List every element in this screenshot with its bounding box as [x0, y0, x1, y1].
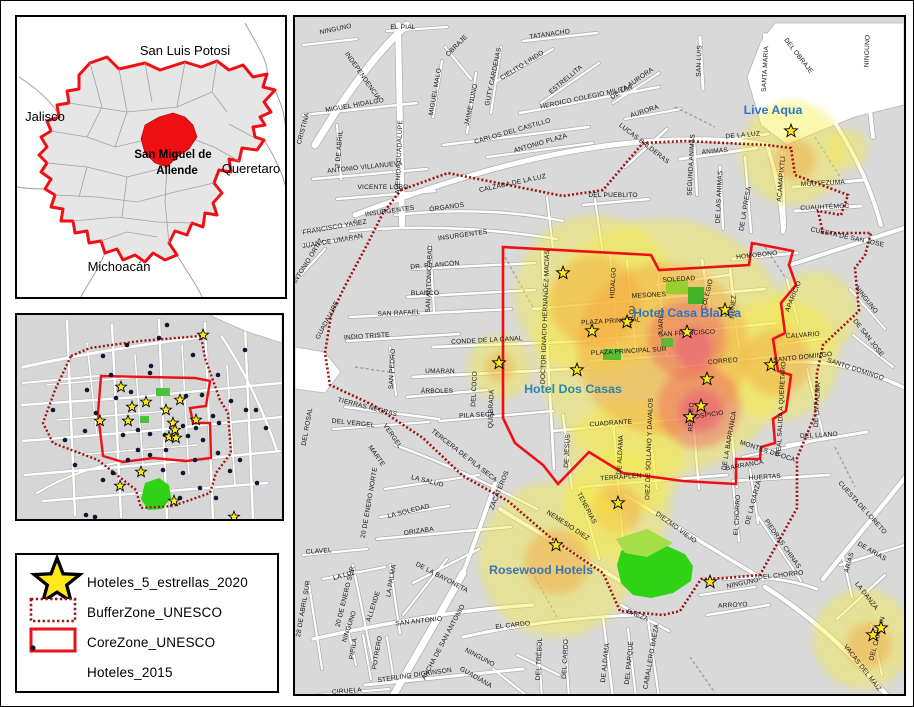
hotel-name-label: Hotel Dos Casas	[524, 382, 622, 396]
hotel-2015-dot	[211, 414, 216, 419]
hotel-2015-dot	[228, 469, 233, 474]
hotel-2015-dot	[121, 433, 126, 438]
street-label: BLANCO	[411, 290, 439, 297]
legend-label: CoreZone_UNESCO	[87, 635, 215, 650]
hotel-2015-dot	[193, 458, 198, 463]
hotel-2015-dot	[201, 438, 206, 443]
hotel-2015-dot	[125, 343, 130, 348]
park-area	[156, 388, 170, 396]
hotel-2015-dot	[101, 478, 106, 483]
hotel-2015-dot	[148, 453, 153, 458]
park-area	[140, 416, 149, 423]
hotel-2015-dot	[148, 371, 153, 376]
hotel-2015-dot	[217, 421, 222, 426]
street-label: QUEBRADA	[487, 389, 495, 428]
street-label: EL PIAL	[390, 24, 415, 31]
region-label: Michoacán	[88, 259, 151, 274]
hotel-2015-dot	[200, 393, 205, 398]
hotel-2015-dot	[94, 411, 99, 416]
hotel-2015-dot	[84, 513, 89, 518]
hotel-2015-dot	[165, 323, 170, 328]
hotel-2015-dot	[238, 458, 243, 463]
street-label: DEL PUEBLITO	[588, 192, 637, 199]
hotel-2015-dot	[198, 486, 203, 491]
hotel-2015-dot	[255, 481, 260, 486]
hotel-2015-dot	[254, 408, 259, 413]
heat-density-blob	[828, 129, 868, 169]
street-label: ÁRBOLES	[421, 386, 454, 395]
hotel-2015-dot	[181, 424, 186, 429]
legend-label: Hoteles_2015	[87, 665, 173, 680]
legend-item-hotels-2020: Hoteles_5_estrellas_2020	[27, 567, 277, 597]
inset-city-map	[15, 313, 284, 521]
hotel-2015-dot	[214, 496, 219, 501]
hotel-2015-dot	[73, 463, 78, 468]
hotel-2015-dot	[136, 428, 141, 433]
main-map: NINGUNOEL PIALOBRAJETATANACHOGUTY CARDEN…	[293, 15, 906, 696]
region-label: San Luis Potosi	[140, 43, 230, 58]
hotel-2015-dot	[148, 432, 153, 437]
region-label: Queretaro	[222, 161, 281, 176]
hotel-2015-dot	[191, 353, 196, 358]
hotel-2015-dot	[229, 399, 234, 404]
hotel-2015-dot	[243, 348, 248, 353]
dot-icon	[27, 642, 87, 702]
region-label: Jalisco	[25, 109, 65, 124]
hotel-2015-dot	[136, 448, 141, 453]
hotel-2015-dot	[114, 396, 119, 401]
main-map-svg: NINGUNOEL PIALOBRAJETATANACHOGUTY CARDEN…	[295, 17, 904, 694]
hotel-2015-dot	[149, 364, 154, 369]
legend-label: Hoteles_5_estrellas_2020	[87, 575, 248, 590]
street-label: UMARAN	[425, 368, 455, 375]
hotel-2015-dot	[184, 394, 189, 399]
hotel-2015-dot	[264, 426, 269, 431]
legend-item-hotels-2015: Hoteles_2015	[27, 657, 277, 687]
hotel-2015-dot	[181, 471, 186, 476]
sma-label-line2: Allende	[156, 165, 198, 177]
hotel-2015-dot	[216, 451, 221, 456]
inset-region-map: San Luis PotosiJaliscoQueretaroMichoacán…	[15, 15, 287, 299]
legend-label: BufferZone_UNESCO	[87, 605, 222, 620]
figure-frame: San Luis PotosiJaliscoQueretaroMichoacán…	[0, 0, 914, 707]
city-overview-svg	[17, 315, 282, 519]
legend: Hoteles_5_estrellas_2020 BufferZone_UNES…	[15, 553, 279, 693]
hotel-2015-dot	[85, 388, 90, 393]
street-label: NINGUNO	[863, 35, 871, 68]
legend-item-bufferzone: BufferZone_UNESCO	[27, 597, 277, 627]
hotel-2015-dot	[63, 438, 68, 443]
region-map-svg: San Luis PotosiJaliscoQueretaroMichoacán…	[17, 17, 285, 297]
hotel-2015-dot	[244, 408, 249, 413]
hotel-2015-dot	[186, 434, 191, 439]
hotel-name-label: Rosewood Hotels	[489, 563, 593, 577]
hotel-2015-dot	[216, 373, 221, 378]
street-label: CIRUELA	[332, 687, 363, 694]
hotel-2015-dot	[164, 448, 169, 453]
hotel-name-label: Live Aqua	[744, 103, 803, 117]
heat-density-blob	[524, 529, 590, 595]
hotel-2015-dot	[109, 373, 114, 378]
hotel-2015-dot	[194, 426, 199, 431]
hotel-2015-dot	[129, 390, 134, 395]
sma-label-line1: San Miguel de	[134, 149, 211, 161]
hotel-2015-dot	[83, 429, 88, 434]
hotel-2015-dot	[111, 471, 116, 476]
street-label: SAN LUIS	[695, 45, 703, 77]
hotel-2015-dot	[51, 408, 56, 413]
hotel-2015-dot	[126, 458, 131, 463]
hotel-2015-dot	[157, 336, 162, 341]
hotel-2015-dot	[161, 468, 166, 473]
hotel-2015-dot	[101, 354, 106, 359]
